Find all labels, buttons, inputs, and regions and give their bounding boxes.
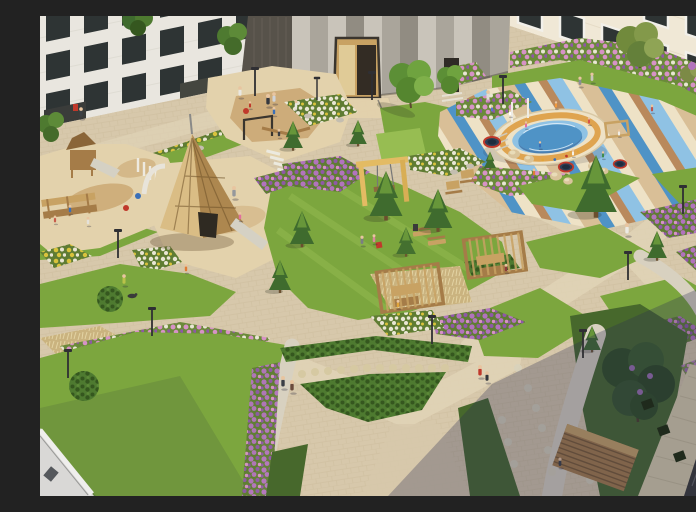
trash-bin xyxy=(413,224,418,231)
garden-bush xyxy=(69,371,99,401)
window xyxy=(160,26,184,57)
window xyxy=(84,81,108,112)
bottom-left-garden xyxy=(40,322,292,496)
scene-svg xyxy=(40,16,696,496)
courtyard-rendering: Aerial architectural rendering of a land… xyxy=(40,16,696,496)
spring-rider xyxy=(243,108,249,114)
climbing-dome xyxy=(508,150,520,159)
trampoline xyxy=(559,163,573,172)
window xyxy=(46,50,70,81)
climbing-dome xyxy=(550,172,562,181)
red-bin xyxy=(73,104,78,111)
climbing-dome xyxy=(524,155,534,163)
entrance-door-dark xyxy=(357,45,376,95)
trampoline xyxy=(484,137,500,147)
window xyxy=(122,73,146,104)
climbing-dome xyxy=(563,177,573,184)
spring-rider xyxy=(135,193,141,199)
window xyxy=(122,34,146,65)
spring-rider xyxy=(123,205,129,211)
teepee-opening xyxy=(198,212,218,238)
window xyxy=(84,42,108,73)
trampoline xyxy=(614,160,627,168)
